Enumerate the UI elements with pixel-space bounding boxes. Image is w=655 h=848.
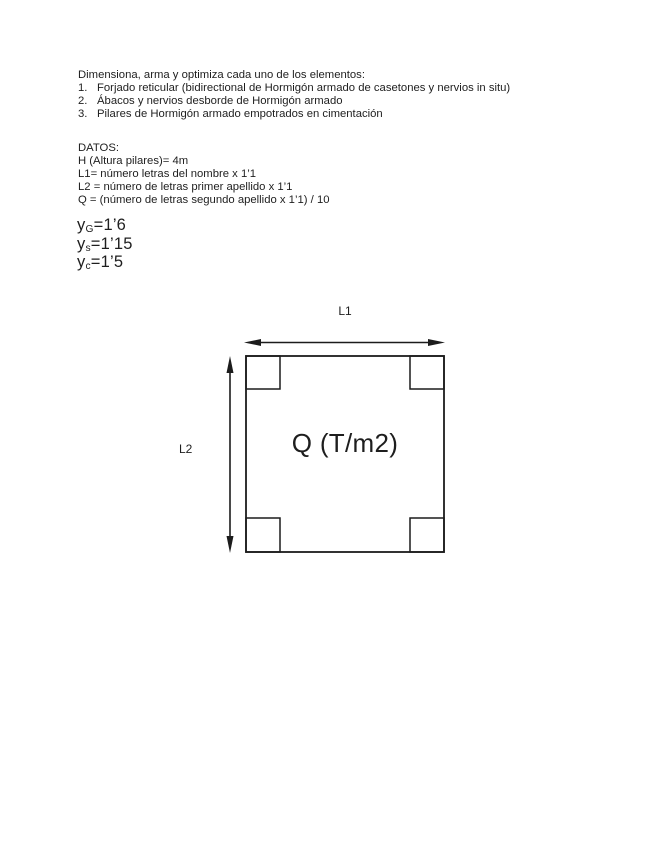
- arrowhead-right: [428, 339, 445, 346]
- datos-line: H (Altura pilares)= 4m: [78, 155, 330, 168]
- list-item-number: 1.: [78, 82, 97, 95]
- datos-line: L2 = número de letras primer apellido x …: [78, 181, 330, 194]
- list-item-number: 2.: [78, 95, 97, 108]
- factor-subscript: c: [85, 261, 90, 272]
- datos-section: DATOS: H (Altura pilares)= 4m L1= número…: [78, 142, 330, 207]
- list-item-number: 3.: [78, 108, 97, 121]
- arrowhead-down: [227, 536, 234, 553]
- list-item-text: Ábacos y nervios desborde de Hormigón ar…: [97, 95, 343, 108]
- exercise-statement: Dimensiona, arma y optimiza cada uno de …: [78, 69, 510, 121]
- factor-line: ys=1’15: [77, 235, 133, 254]
- document-page: Dimensiona, arma y optimiza cada uno de …: [0, 0, 655, 848]
- list-item: 1. Forjado reticular (bidirectional de H…: [78, 82, 510, 95]
- factor-subscript: G: [85, 224, 93, 235]
- column-bottom-left: [246, 518, 280, 552]
- column-bottom-right: [410, 518, 444, 552]
- arrowhead-left: [244, 339, 261, 346]
- factor-subscript: s: [85, 243, 90, 254]
- slab-plan-diagram: [0, 0, 655, 848]
- l2-dimension-arrow: [227, 356, 234, 553]
- factor-line: yG=1’6: [77, 216, 133, 235]
- factor-value: =1’6: [94, 216, 126, 234]
- datos-title: DATOS:: [78, 142, 330, 155]
- list-item-text: Pilares de Hormigón armado empotrados en…: [97, 108, 383, 121]
- list-item-text: Forjado reticular (bidirectional de Horm…: [97, 82, 510, 95]
- column-top-left: [246, 356, 280, 389]
- datos-line: Q = (número de letras segundo apellido x…: [78, 194, 330, 207]
- intro-line: Dimensiona, arma y optimiza cada uno de …: [78, 69, 510, 82]
- datos-line: L1= número letras del nombre x 1’1: [78, 168, 330, 181]
- l2-dimension-label: L2: [179, 442, 192, 456]
- slab-load-label: Q (T/m2): [246, 428, 444, 459]
- arrowhead-up: [227, 356, 234, 373]
- column-top-right: [410, 356, 444, 389]
- factor-value: =1’15: [91, 235, 133, 253]
- list-item: 2. Ábacos y nervios desborde de Hormigón…: [78, 95, 510, 108]
- l1-dimension-arrow: [244, 339, 445, 346]
- l1-dimension-label: L1: [246, 304, 444, 318]
- list-item: 3. Pilares de Hormigón armado empotrados…: [78, 108, 510, 121]
- safety-factors: yG=1’6 ys=1’15 yc=1’5: [77, 216, 133, 272]
- factor-value: =1’5: [91, 253, 123, 271]
- factor-line: yc=1’5: [77, 253, 133, 272]
